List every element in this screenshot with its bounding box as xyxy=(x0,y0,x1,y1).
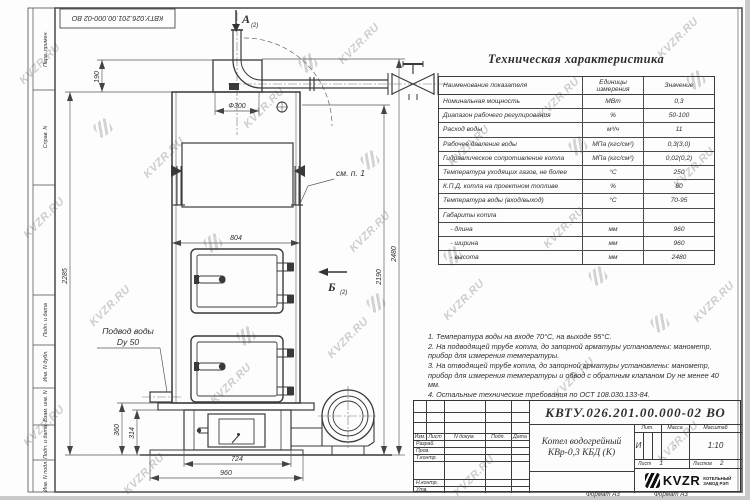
lit-header: Лит. xyxy=(634,424,661,432)
sig-row-razrab: Разраб. xyxy=(416,440,444,447)
rev-header-data: Дата xyxy=(511,433,529,440)
spec-cell-value: 250 xyxy=(644,166,714,179)
spec-cell-unit: % xyxy=(583,180,644,193)
scale-header: Масштаб xyxy=(689,424,742,432)
spec-cell-unit: м³/ч xyxy=(583,123,644,136)
drawing-designation: КВТУ.026.201.00.000-02 ВО xyxy=(529,401,742,424)
spec-table: Наименование показателя Единицы измерени… xyxy=(438,76,715,265)
svg-text:960: 960 xyxy=(220,470,232,477)
sig-row-prov: Пров. xyxy=(416,447,444,454)
spec-cell-name: Диапазон рабочего регулирования xyxy=(439,109,583,122)
rev-header-ndokum: N докум. xyxy=(444,433,485,440)
boiler-base xyxy=(140,403,392,455)
spec-cell-name: Температура воды (вход/выход) xyxy=(439,194,583,207)
dimension-labels: 190 2285 Ф300 804 360 314 724 960 2190 2… xyxy=(62,71,398,477)
sheet-number: Лист 1 xyxy=(638,459,688,468)
centerlines xyxy=(142,12,448,448)
spec-cell-unit: °С xyxy=(583,194,644,207)
spec-cell-unit: мм xyxy=(583,223,644,236)
product-name-line2: КВр-0,3 КБД (К) xyxy=(548,448,615,459)
note-item: 4. Остальные технические требования по О… xyxy=(428,390,730,399)
table-row: Гидравлическое сопротивление котла МПа (… xyxy=(439,152,714,166)
spec-cell-unit: МВт xyxy=(583,95,644,108)
sheet-label: Лист xyxy=(638,461,651,467)
drawing-sheet: KVZR.RU KVZR.RU KVZR.RU KVZR.RU KVZR.RU … xyxy=(0,0,745,496)
format-note-left: Формат А3 xyxy=(586,491,620,498)
svg-text:724: 724 xyxy=(231,456,243,463)
spec-cell-name: Рабочее давление воды xyxy=(439,138,583,151)
svg-text:314: 314 xyxy=(129,427,136,439)
table-row: - длина мм 960 xyxy=(439,223,714,237)
svg-text:2285: 2285 xyxy=(62,268,69,285)
smoke-box xyxy=(213,60,262,92)
rev-header-list: Лист xyxy=(426,433,444,440)
technical-notes: 1. Температура воды на входе 70°С, на вы… xyxy=(428,332,730,400)
spec-cell-value: 11 xyxy=(644,123,714,136)
table-row: Температура уходящих газов, не более °С … xyxy=(439,166,714,180)
spec-cell-unit: % xyxy=(583,109,644,122)
company-logo-text: KVZR xyxy=(663,473,700,488)
blower-fan xyxy=(291,390,374,455)
spec-col-header: Наименование показателя xyxy=(439,77,583,94)
svg-text:Инв. N дубл.: Инв. N дубл. xyxy=(43,350,49,381)
svg-text:Подп. и дата: Подп. и дата xyxy=(43,425,49,459)
spec-cell-value: 50-100 xyxy=(644,109,714,122)
spec-cell-value: 70-95 xyxy=(644,194,714,207)
top-left-stamp: КВТУ.026.201.00.000-02 ВО xyxy=(71,14,163,23)
note-item: 1. Температура воды на входе 70°С, на вы… xyxy=(428,332,730,341)
table-row: Габариты котла xyxy=(439,209,714,223)
fire-door-upper xyxy=(191,249,294,313)
spec-col-header: Значение xyxy=(644,77,714,94)
spec-cell-value: 960 xyxy=(644,223,714,236)
svg-text:Ф300: Ф300 xyxy=(228,103,245,110)
mass-value: - xyxy=(661,432,689,459)
svg-text:2480: 2480 xyxy=(391,246,398,263)
spec-cell-name: Температура уходящих газов, не более xyxy=(439,166,583,179)
svg-text:см. п. 1: см. п. 1 xyxy=(336,168,365,178)
spec-cell-name: К.П.Д. котла на проектном топливе xyxy=(439,180,583,193)
format-note-right: Формат А3 xyxy=(654,491,688,498)
sight-hole xyxy=(276,101,288,113)
spec-cell-unit: мм xyxy=(583,251,644,264)
company-name-line1: КОТЕЛЬНЫЙ xyxy=(703,476,731,481)
table-row: Расход воды м³/ч 11 xyxy=(439,123,714,137)
section-marker-b: Б (2) xyxy=(318,268,347,296)
spec-cell-value: 80 xyxy=(644,180,714,193)
sheets-label: Листов xyxy=(693,461,712,467)
section-marker-a: А (2) xyxy=(232,10,258,32)
spec-cell-name: Габариты котла xyxy=(439,209,583,222)
spec-cell-name: Расход воды xyxy=(439,123,583,136)
spec-cell-value: 0,02(0,2) xyxy=(644,152,714,165)
dimensions xyxy=(65,59,405,481)
svg-text:360: 360 xyxy=(114,424,121,436)
svg-text:Б: Б xyxy=(327,280,336,294)
table-row: Рабочее давление воды МПа (кгс/см²) 0,3(… xyxy=(439,138,714,152)
svg-text:190: 190 xyxy=(94,71,101,83)
svg-text:(2): (2) xyxy=(340,290,347,296)
spec-cell-unit xyxy=(583,209,644,222)
kvzr-logo-icon xyxy=(645,473,660,488)
spec-cell-unit: °С xyxy=(583,166,644,179)
spec-cell-value: 0,3(3,0) xyxy=(644,138,714,151)
spec-cell-name: Номинальная мощность xyxy=(439,95,583,108)
spec-cell-name: - высота xyxy=(439,251,583,264)
spec-cell-value: 960 xyxy=(644,237,714,250)
ash-door xyxy=(197,414,265,447)
svg-text:(2): (2) xyxy=(251,23,258,29)
svg-text:2190: 2190 xyxy=(376,269,383,286)
sig-row-utv: Утв. xyxy=(416,486,444,493)
table-row: Температура воды (вход/выход) °С 70-95 xyxy=(439,194,714,208)
svg-text:Подвод воды: Подвод воды xyxy=(102,326,154,336)
product-name: Котел водогрейный КВр-0,3 КБД (К) xyxy=(529,424,634,471)
svg-text:Подп. и дата: Подп. и дата xyxy=(43,303,49,337)
rev-header-podp: Подп. xyxy=(485,433,511,440)
table-row: - ширина мм 960 xyxy=(439,237,714,251)
mass-header: Масса xyxy=(661,424,689,432)
spec-cell-value xyxy=(644,209,714,222)
sig-row-tkontr: Т.контр. xyxy=(416,454,444,461)
spec-col-header: Единицы измерения xyxy=(583,77,644,94)
spec-cell-value: 2480 xyxy=(644,251,714,264)
product-name-line1: Котел водогрейный xyxy=(542,437,622,448)
note-item: 2. На подводящей трубе котла, до запорно… xyxy=(428,342,730,361)
svg-text:Dу 50: Dу 50 xyxy=(117,337,139,347)
company-block: KVZR КОТЕЛЬНЫЙ ЗАВОД РЭП xyxy=(634,468,742,493)
svg-text:А: А xyxy=(241,12,250,26)
spec-cell-name: - длина xyxy=(439,223,583,236)
svg-text:Справ. N: Справ. N xyxy=(43,126,49,149)
table-row: К.П.Д. котла на проектном топливе % 80 xyxy=(439,180,714,194)
svg-text:804: 804 xyxy=(230,235,242,242)
lit-value: И xyxy=(634,432,643,459)
spec-cell-unit: мм xyxy=(583,237,644,250)
spec-cell-unit: МПа (кгс/см²) xyxy=(583,138,644,151)
valve xyxy=(388,61,438,100)
chimney-swing-arc xyxy=(244,38,332,126)
spec-cell-name: Гидравлическое сопротивление котла xyxy=(439,152,583,165)
company-name: КОТЕЛЬНЫЙ ЗАВОД РЭП xyxy=(703,476,731,486)
fire-door-lower xyxy=(191,336,294,402)
spec-cell-name: - ширина xyxy=(439,237,583,250)
rev-header-izm: Изм. xyxy=(414,433,426,440)
frame-margin-labels: Перв. примен. Справ. N Подп. и дата Инв.… xyxy=(43,14,163,492)
svg-text:Взам. инв. N: Взам. инв. N xyxy=(43,390,49,422)
note-item: 3. На отводящей трубе котла, до запорной… xyxy=(428,361,730,389)
table-row: Номинальная мощность МВт 0,3 xyxy=(439,95,714,109)
table-row: Диапазон рабочего регулирования % 50-100 xyxy=(439,109,714,123)
table-row: - высота мм 2480 xyxy=(439,251,714,264)
sheets-total: Листов 2 xyxy=(693,459,742,468)
callout-see-note: см. п. 1 xyxy=(299,168,365,206)
spec-cell-value: 0,3 xyxy=(644,95,714,108)
sig-row-nkontr: Н.контр. xyxy=(416,479,444,486)
spec-table-title: Техническая характеристика xyxy=(445,52,707,67)
spec-cell-unit: МПа (кгс/см²) xyxy=(583,152,644,165)
spec-table-header: Наименование показателя Единицы измерени… xyxy=(439,77,714,95)
svg-text:Перв. примен.: Перв. примен. xyxy=(43,31,49,67)
sheet-value: 1 xyxy=(659,460,663,467)
callout-water-inlet: Подвод воды Dу 50 xyxy=(97,326,167,392)
company-name-line2: ЗАВОД РЭП xyxy=(703,481,731,486)
svg-text:Инв. N подл.: Инв. N подл. xyxy=(43,460,49,492)
sheets-value: 2 xyxy=(720,460,724,467)
upper-panel xyxy=(171,143,305,207)
scale-value: 1:10 xyxy=(689,432,742,459)
title-block: КВТУ.026.201.00.000-02 ВО Котел водогрей… xyxy=(413,400,741,492)
